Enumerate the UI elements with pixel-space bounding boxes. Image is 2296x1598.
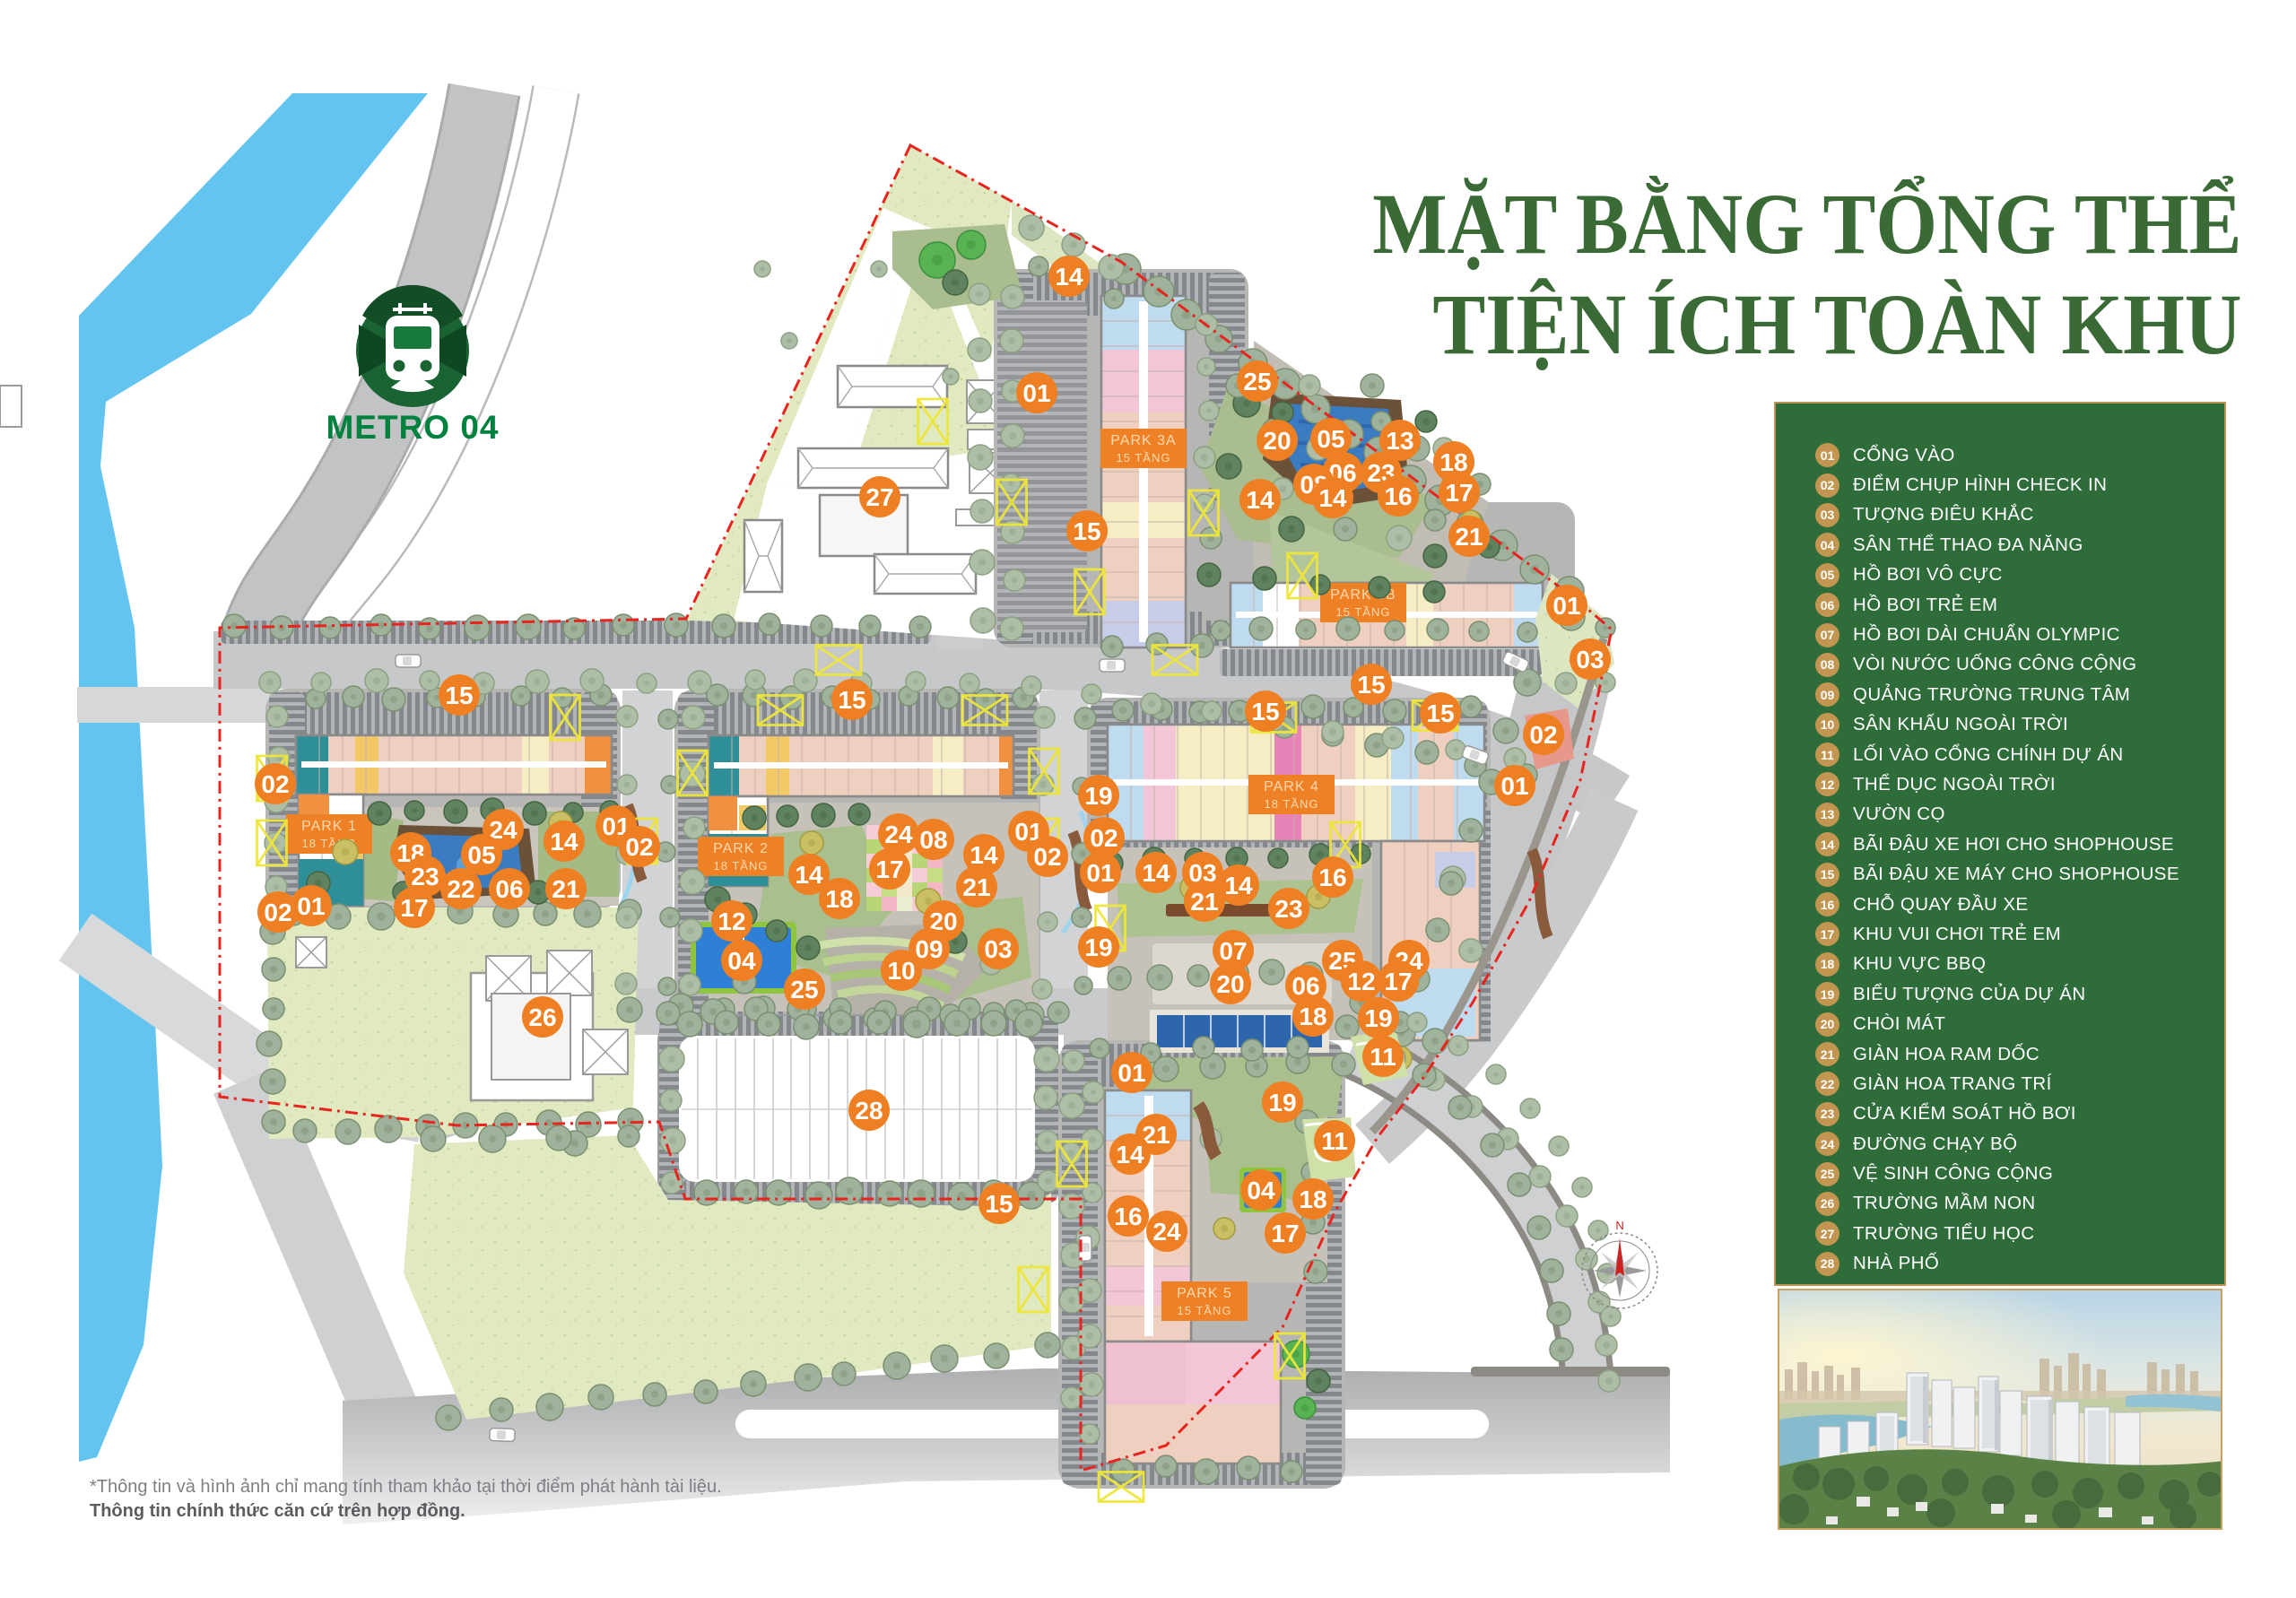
svg-text:METRO 04: METRO 04 (326, 409, 499, 446)
svg-text:04: 04 (727, 947, 756, 975)
svg-text:PARK 2: PARK 2 (713, 841, 769, 856)
svg-text:01: 01 (1022, 379, 1050, 407)
svg-text:PARK 3A: PARK 3A (1110, 433, 1176, 448)
svg-text:21: 21 (962, 873, 990, 901)
svg-text:17: 17 (1445, 479, 1473, 507)
svg-text:19: 19 (1268, 1089, 1296, 1116)
svg-text:01: 01 (1552, 592, 1580, 620)
svg-text:18 TẦNG: 18 TẦNG (714, 859, 769, 873)
svg-text:02: 02 (1529, 721, 1557, 749)
svg-text:14: 14 (1318, 484, 1347, 512)
svg-text:PARK 5: PARK 5 (1177, 1286, 1232, 1301)
svg-text:23: 23 (1274, 895, 1302, 923)
svg-text:11: 11 (1321, 1127, 1348, 1155)
svg-text:19: 19 (1084, 782, 1112, 810)
svg-text:14: 14 (550, 828, 578, 855)
svg-text:16: 16 (1384, 482, 1412, 510)
svg-text:01: 01 (1118, 1059, 1145, 1087)
svg-text:13: 13 (1386, 427, 1413, 455)
svg-text:25: 25 (1243, 368, 1271, 395)
svg-text:17: 17 (1271, 1220, 1299, 1247)
svg-text:21: 21 (552, 875, 579, 903)
svg-text:15 TẦNG: 15 TẦNG (1178, 1304, 1232, 1317)
svg-text:18: 18 (1299, 1003, 1326, 1030)
svg-text:22: 22 (447, 875, 474, 903)
svg-text:24: 24 (884, 821, 913, 848)
svg-text:21: 21 (1190, 888, 1218, 916)
svg-text:23: 23 (411, 863, 439, 890)
svg-text:14: 14 (1142, 859, 1170, 887)
svg-text:06: 06 (495, 875, 523, 903)
svg-text:03: 03 (984, 935, 1012, 963)
svg-text:25: 25 (790, 976, 818, 1003)
svg-text:PARK 1: PARK 1 (301, 819, 357, 834)
svg-text:14: 14 (1055, 263, 1083, 291)
svg-text:18: 18 (1299, 1185, 1326, 1213)
svg-text:12: 12 (717, 908, 745, 935)
svg-text:19: 19 (1364, 1004, 1392, 1032)
svg-text:24: 24 (1152, 1218, 1181, 1246)
svg-text:15: 15 (838, 686, 865, 714)
svg-text:01: 01 (1086, 859, 1114, 887)
svg-text:15: 15 (1357, 671, 1385, 699)
svg-text:14: 14 (970, 841, 998, 869)
svg-text:04: 04 (1247, 1177, 1275, 1204)
svg-text:01: 01 (297, 892, 325, 920)
svg-text:15: 15 (1073, 517, 1100, 545)
svg-text:19: 19 (1084, 934, 1112, 961)
svg-text:14: 14 (1224, 872, 1253, 899)
svg-text:09: 09 (915, 935, 943, 963)
svg-text:07: 07 (1219, 937, 1247, 965)
svg-text:05: 05 (467, 841, 495, 869)
svg-text:15 TẦNG: 15 TẦNG (1117, 451, 1171, 465)
svg-text:17: 17 (1384, 968, 1412, 995)
svg-text:28: 28 (855, 1097, 883, 1125)
svg-text:12: 12 (1347, 968, 1375, 995)
svg-text:03: 03 (1576, 646, 1604, 673)
svg-text:18: 18 (825, 885, 853, 913)
svg-text:20: 20 (1216, 970, 1244, 998)
svg-text:27: 27 (865, 483, 893, 511)
svg-text:N: N (1615, 1219, 1623, 1232)
svg-text:PARK 4: PARK 4 (1264, 779, 1319, 795)
svg-text:18: 18 (1439, 448, 1467, 476)
svg-text:11: 11 (1370, 1043, 1396, 1071)
svg-text:02: 02 (264, 899, 291, 926)
svg-text:02: 02 (1033, 843, 1061, 871)
svg-text:14: 14 (1246, 486, 1274, 514)
svg-text:14: 14 (795, 861, 823, 889)
svg-text:14: 14 (1116, 1141, 1144, 1168)
svg-text:26: 26 (528, 1003, 556, 1031)
svg-text:15: 15 (1251, 698, 1279, 725)
svg-text:02: 02 (1090, 824, 1118, 852)
svg-text:20: 20 (1263, 427, 1291, 455)
svg-text:18 TẦNG: 18 TẦNG (1265, 797, 1319, 811)
svg-text:15: 15 (1426, 699, 1454, 727)
svg-text:05: 05 (1317, 425, 1344, 453)
svg-text:17: 17 (875, 855, 903, 883)
svg-text:15 TẦNG: 15 TẦNG (1336, 605, 1391, 619)
svg-text:10: 10 (887, 957, 915, 985)
svg-text:17: 17 (400, 894, 428, 922)
svg-text:02: 02 (625, 833, 653, 861)
svg-text:08: 08 (919, 826, 947, 854)
svg-text:21: 21 (1455, 523, 1483, 551)
svg-text:15: 15 (445, 682, 473, 709)
svg-text:01: 01 (1500, 772, 1528, 800)
svg-text:02: 02 (261, 770, 289, 798)
svg-text:15: 15 (985, 1190, 1013, 1218)
svg-text:16: 16 (1114, 1203, 1142, 1230)
svg-text:16: 16 (1318, 864, 1346, 891)
